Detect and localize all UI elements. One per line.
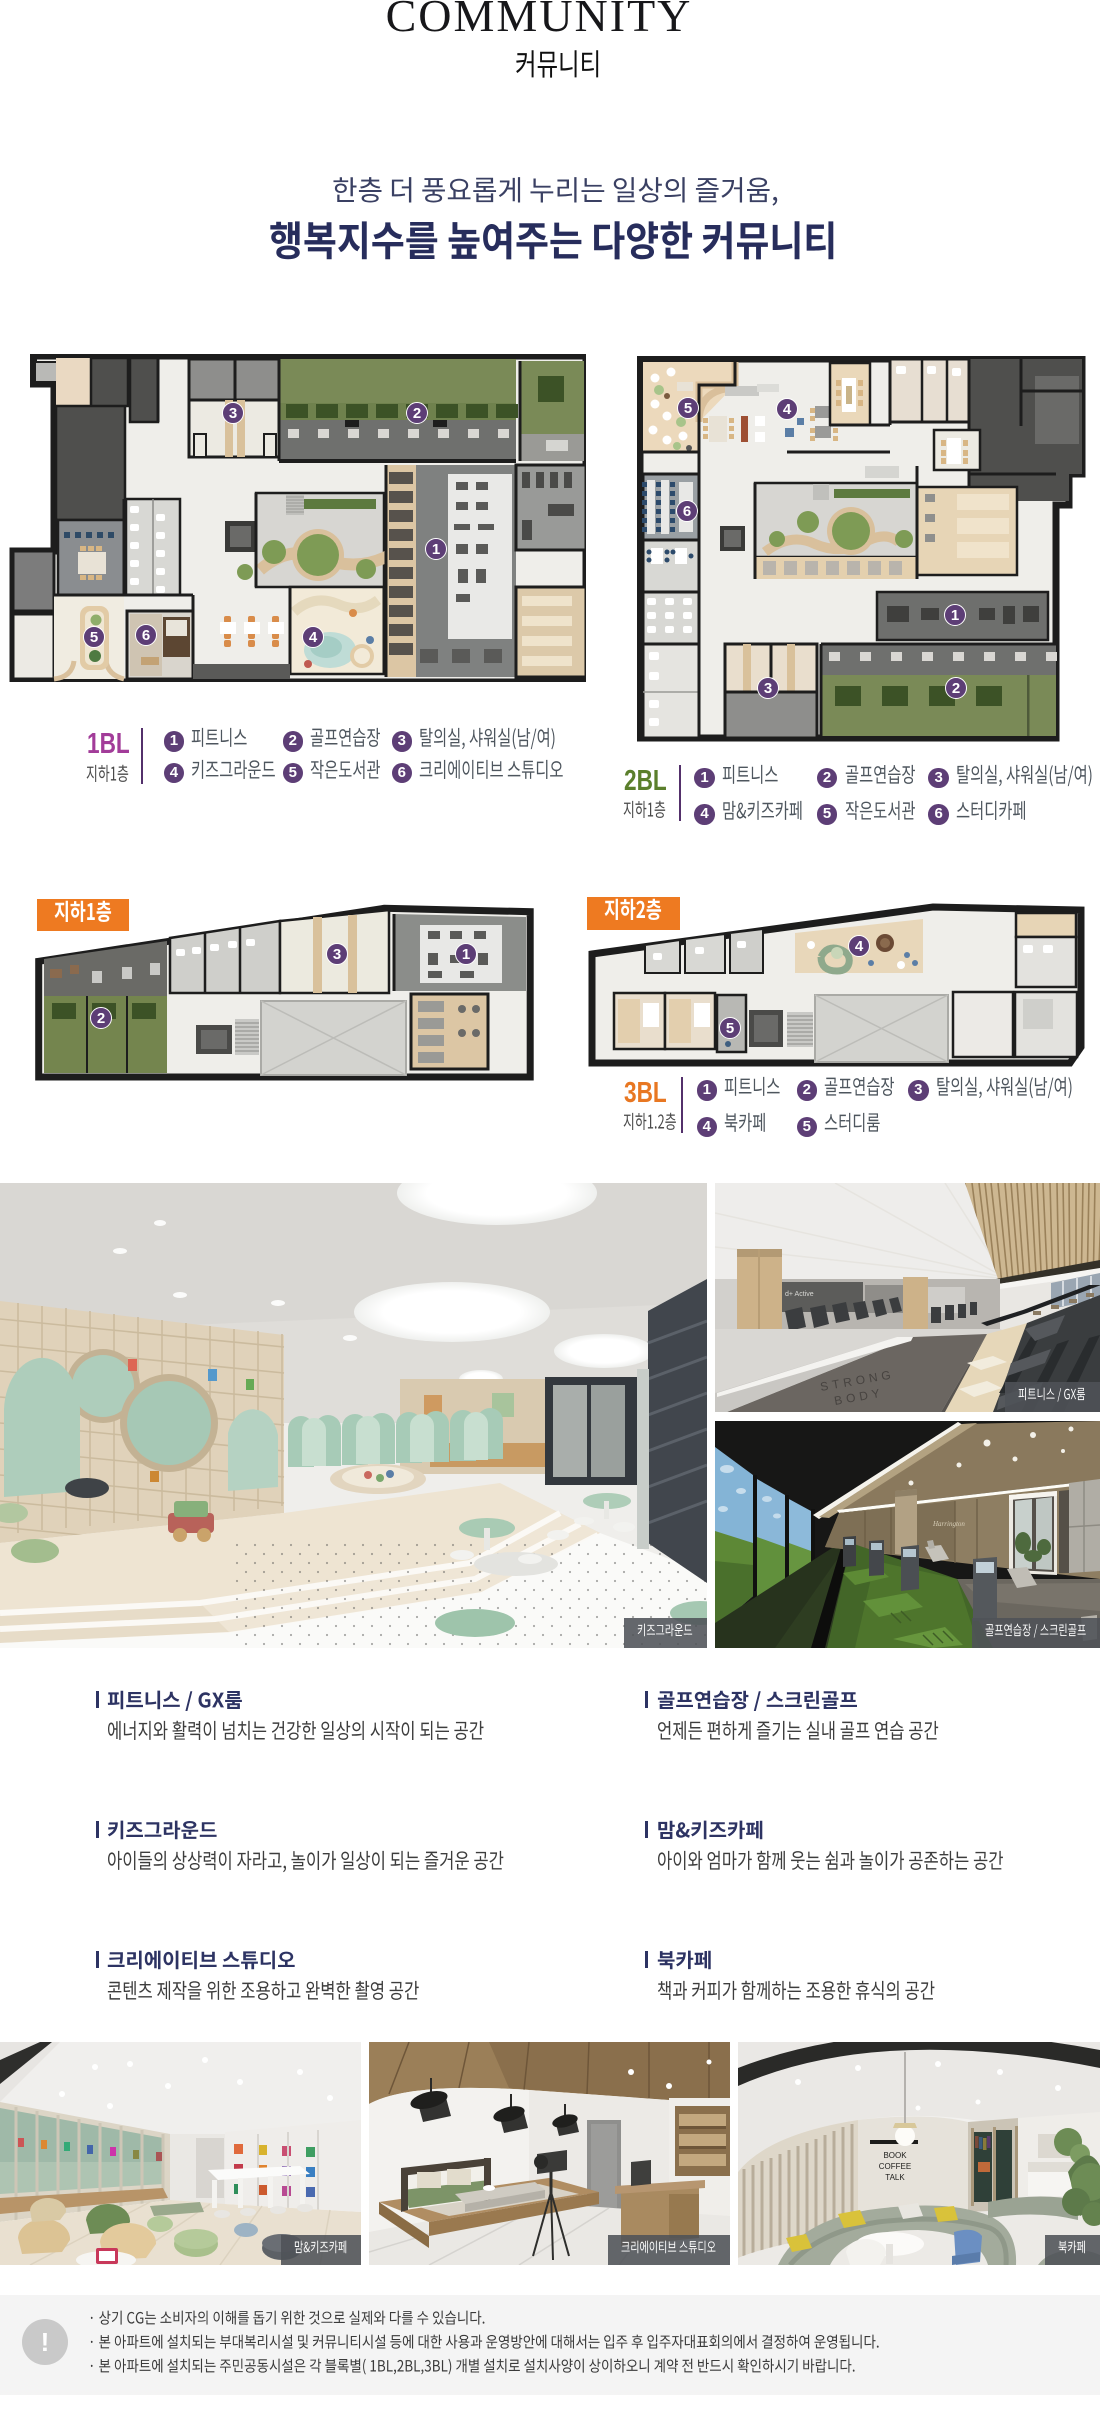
svg-text:1: 1 [462, 946, 470, 963]
svg-text:BOOK: BOOK [883, 2151, 907, 2160]
svg-text:3: 3 [333, 946, 341, 963]
svg-text:d+ Active: d+ Active [785, 1291, 814, 1298]
svg-text:4: 4 [309, 629, 318, 646]
svg-text:3: 3 [229, 405, 237, 422]
svg-text:COFFEE: COFFEE [879, 2162, 911, 2171]
svg-text:5: 5 [684, 400, 692, 417]
svg-text:TALK: TALK [885, 2173, 905, 2182]
svg-text:Harrington: Harrington [932, 1520, 965, 1528]
svg-text:4: 4 [855, 938, 864, 955]
svg-text:5: 5 [726, 1020, 734, 1037]
svg-text:5: 5 [90, 629, 98, 646]
svg-text:2: 2 [952, 680, 960, 697]
svg-text:6: 6 [683, 503, 691, 520]
svg-text:6: 6 [142, 627, 150, 644]
svg-text:1: 1 [951, 607, 959, 624]
svg-text:4: 4 [783, 401, 792, 418]
svg-text:1: 1 [432, 541, 440, 558]
svg-text:2: 2 [97, 1010, 105, 1027]
svg-text:2: 2 [413, 405, 421, 422]
svg-text:3: 3 [764, 680, 772, 697]
